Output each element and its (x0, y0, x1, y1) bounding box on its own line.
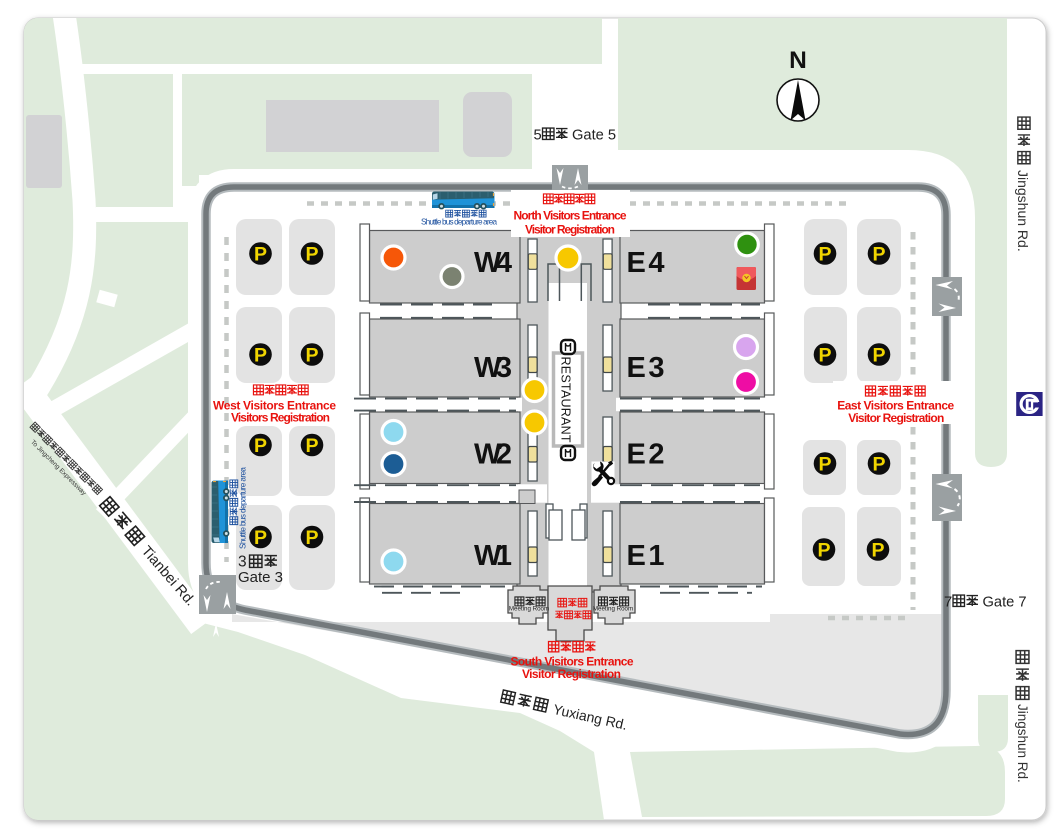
svg-text:E2: E2 (627, 439, 665, 471)
svg-text:P: P (818, 454, 831, 476)
svg-text:E1: E1 (627, 540, 665, 572)
svg-text:N: N (789, 47, 807, 74)
svg-text:P: P (254, 345, 267, 367)
svg-text:P: P (254, 435, 267, 457)
svg-text:5: 5 (534, 128, 542, 144)
svg-text:W2: W2 (474, 439, 512, 471)
svg-text:North Visitors Entrance: North Visitors Entrance (514, 209, 627, 223)
svg-text:P: P (305, 527, 318, 549)
svg-text:Visitor Registration: Visitor Registration (525, 223, 615, 237)
svg-text:Shuttle bus departure area: Shuttle bus departure area (421, 217, 497, 226)
svg-text:P: P (254, 527, 267, 549)
svg-text:Visitor Registration: Visitor Registration (522, 667, 621, 681)
svg-text:P: P (871, 540, 884, 562)
svg-text:Gate 3: Gate 3 (238, 569, 283, 586)
svg-text:Visitors Registration: Visitors Registration (231, 411, 330, 425)
svg-text:7: 7 (944, 595, 952, 611)
svg-text:Gate 7: Gate 7 (983, 595, 1027, 611)
svg-text:E4: E4 (627, 247, 665, 279)
svg-text:P: P (305, 244, 318, 266)
svg-text:Meeting Room: Meeting Room (593, 606, 633, 613)
svg-text:RESTAURANT: RESTAURANT (559, 357, 573, 443)
svg-text:P: P (818, 244, 831, 266)
svg-text:P: P (305, 435, 318, 457)
svg-text:P: P (817, 540, 830, 562)
svg-text:Gate 5: Gate 5 (572, 128, 616, 144)
svg-text:P: P (872, 454, 885, 476)
svg-text:P: P (872, 244, 885, 266)
svg-text:W4: W4 (474, 247, 512, 279)
svg-text:W3: W3 (474, 352, 512, 384)
svg-text:P: P (872, 345, 885, 367)
svg-text:3: 3 (238, 554, 247, 571)
svg-text:Shuttle bus departure area: Shuttle bus departure area (239, 467, 248, 549)
svg-text:P: P (254, 244, 267, 266)
svg-text:Meeting Room: Meeting Room (509, 606, 549, 613)
svg-text:E3: E3 (627, 352, 665, 384)
svg-text:Visitor Registration: Visitor Registration (848, 411, 944, 425)
svg-text:Jingshun Rd.: Jingshun Rd. (1015, 170, 1031, 252)
svg-text:P: P (818, 345, 831, 367)
svg-text:P: P (305, 345, 318, 367)
svg-text:Jingshun Rd.: Jingshun Rd. (1015, 704, 1030, 783)
svg-text:W1: W1 (474, 540, 512, 572)
